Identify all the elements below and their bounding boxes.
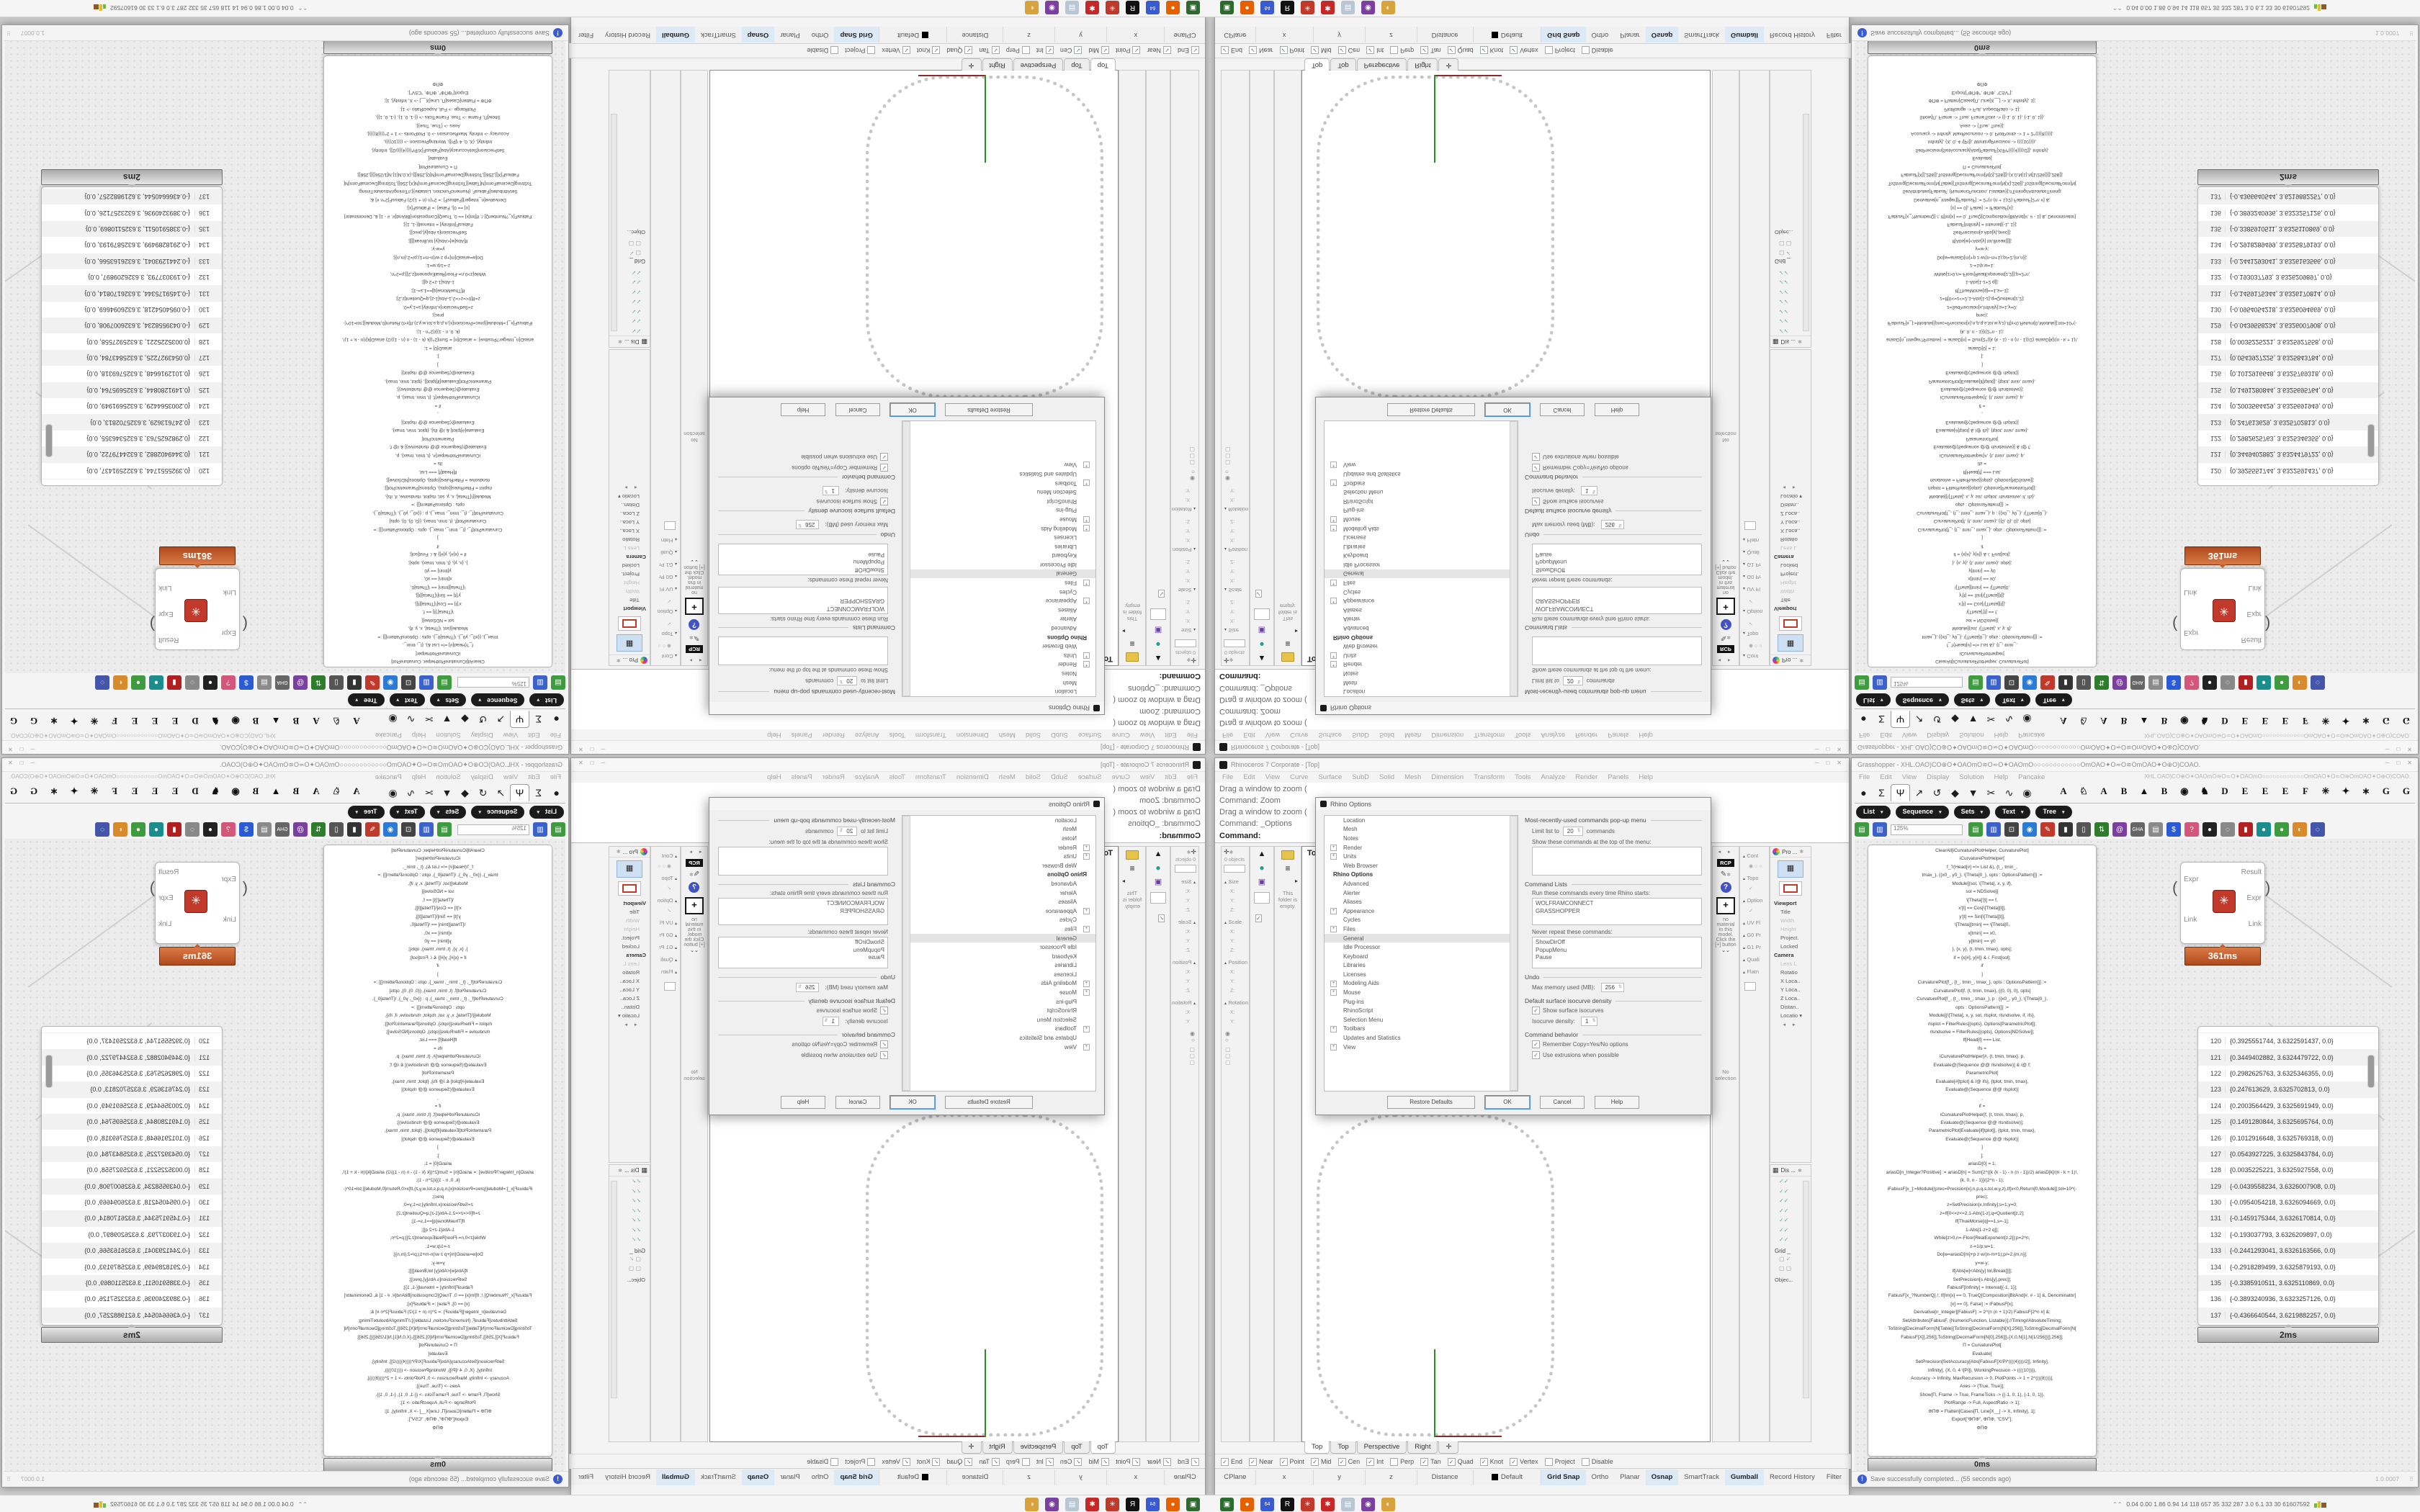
close-icon[interactable]: ✕: [578, 746, 583, 752]
property-row-label[interactable]: Z Loca..: [1770, 994, 1811, 1002]
rhino-menu-item[interactable]: Surface: [1318, 773, 1342, 781]
options-tree-item[interactable]: Mesh: [902, 825, 1095, 834]
resize-grip[interactable]: ⠿: [2409, 1476, 2416, 1482]
camera-properties-button[interactable]: ▦: [1778, 634, 1803, 652]
gear-icon[interactable]: ✱: [1798, 1168, 1802, 1174]
status-toggle[interactable]: Gumball: [656, 1470, 695, 1485]
osnap-checkbox[interactable]: ✓Near: [1147, 47, 1171, 55]
osnap-checkbox[interactable]: ✓Knot: [917, 1458, 941, 1466]
plugin-tab-icon[interactable]: B: [249, 715, 263, 726]
panel-checkbox[interactable]: ✓: [1147, 588, 1170, 608]
options-tree-item[interactable]: +Modeling Aids: [902, 979, 1095, 989]
brush-icon[interactable]: ✎✱: [681, 867, 707, 878]
mathematica-link-component[interactable]: Expr Link Result Expr Link ✳: [2180, 862, 2265, 944]
rhino-menu-item[interactable]: Help: [1639, 773, 1653, 781]
plugin-tab-icon[interactable]: ∗: [2359, 715, 2372, 726]
osnap-checkbox[interactable]: ✓Mid: [1088, 1458, 1109, 1466]
category-tab-icon[interactable]: ↗: [1910, 711, 1928, 727]
photo-panel-icon[interactable]: ▣: [1147, 626, 1170, 639]
grasshopper-menu-item[interactable]: View: [1902, 773, 1917, 781]
notepad-icon[interactable]: ▤: [1065, 1498, 1079, 1511]
category-tab-icon[interactable]: ∿: [402, 785, 420, 801]
osnap-checkbox[interactable]: ✓End: [1178, 47, 1199, 55]
grasshopper-menu-item[interactable]: Display: [471, 773, 493, 781]
property-row-label[interactable]: Viewport: [609, 899, 650, 907]
options-tree-item[interactable]: +Appearance: [902, 596, 1095, 606]
grasshopper-menu-item[interactable]: Edit: [528, 773, 539, 781]
options-tree-item[interactable]: Keyboard: [902, 952, 1095, 961]
options-tree-item[interactable]: +View: [902, 461, 1095, 470]
panel-checkbox[interactable]: ✓: [1250, 588, 1273, 608]
osnap-checkbox[interactable]: ✓Knot: [1480, 47, 1504, 55]
rhino-menu-item[interactable]: Curve: [1112, 732, 1130, 739]
open-file-icon[interactable]: ▤: [1968, 675, 1983, 690]
osnap-checkbox[interactable]: Project: [845, 47, 875, 55]
code-panel[interactable]: ClearAll[iCurvaturePlotHelper, Curvature…: [1868, 55, 2097, 667]
category-tab-icon[interactable]: ▼: [438, 785, 456, 801]
options-tree-item[interactable]: +Render: [902, 843, 1095, 852]
list-scroll-thumb[interactable]: [45, 424, 53, 457]
plugin-tab-icon[interactable]: ✦: [2339, 715, 2352, 726]
save-file-icon[interactable]: ▥: [533, 675, 547, 690]
rhino-menu-item[interactable]: Tools: [1515, 732, 1531, 739]
category-tab-icon[interactable]: Ψ: [1891, 784, 1910, 801]
expand-right-icon[interactable]: ▸: [1275, 873, 1301, 884]
plugin-tab-icon[interactable]: E: [2258, 715, 2272, 726]
options-tree-item[interactable]: Notes: [1325, 669, 1518, 678]
component-output-expr[interactable]: Expr: [158, 610, 174, 618]
grasshopper-menu-item[interactable]: File: [550, 732, 561, 739]
rhino-menu-item[interactable]: Solid: [1026, 773, 1041, 781]
osnap-checkbox[interactable]: ✓Cen: [1060, 47, 1083, 55]
status-layer[interactable]: Default: [879, 27, 946, 43]
osnap-checkbox[interactable]: Project: [1545, 47, 1575, 55]
tray-mini-graph[interactable]: [2314, 5, 2326, 12]
ok-button[interactable]: OK: [890, 403, 935, 416]
property-row-label[interactable]: Title: [1770, 596, 1811, 605]
options-tree-item[interactable]: +Files: [902, 578, 1095, 588]
options-tree-item[interactable]: +Appearance: [902, 906, 1095, 916]
options-tree-item[interactable]: +Appearance: [1325, 596, 1518, 606]
property-row-label[interactable]: Title: [609, 907, 650, 916]
osnap-checkbox[interactable]: ✓Quad: [946, 1458, 972, 1466]
orange-ball-icon[interactable]: ◐: [2293, 822, 2307, 837]
plugin-tab-icon[interactable]: G: [7, 715, 21, 726]
never-repeat-item[interactable]: PopupMenu: [1536, 947, 1698, 955]
osnap-checkbox[interactable]: ✓Int: [1366, 1458, 1384, 1466]
options-tree-item[interactable]: RhinoScript: [902, 1006, 1095, 1015]
status-layer[interactable]: Default: [1474, 1470, 1541, 1485]
osnap-checkbox[interactable]: ✓Tan: [979, 47, 1000, 55]
options-tree-item[interactable]: Mesh: [1325, 825, 1518, 834]
rcp-tab[interactable]: RCP: [1717, 859, 1734, 867]
status-toggle[interactable]: Grid Snap: [835, 27, 879, 43]
behavior-checkbox[interactable]: ✓Remember Copy=Yes/No options: [718, 464, 888, 472]
red-cylinder-icon[interactable]: ▮: [2238, 822, 2253, 837]
options-tree-item[interactable]: Advanced: [1325, 879, 1518, 888]
property-row-label[interactable]: X Loca..: [1770, 527, 1811, 536]
category-tab-icon[interactable]: Σ: [1873, 711, 1891, 727]
property-row-label[interactable]: Viewport: [1770, 899, 1811, 907]
zoom-extents-icon[interactable]: ⊡: [401, 675, 416, 690]
options-tree-item[interactable]: +Mouse: [1325, 988, 1518, 997]
category-tab-icon[interactable]: ▼: [438, 711, 456, 727]
grasshopper-menu-item[interactable]: File: [1859, 732, 1870, 739]
osnap-checkbox[interactable]: Perp: [1006, 1458, 1030, 1466]
rhino-menu-item[interactable]: Help: [767, 773, 781, 781]
folder-icon[interactable]: [1281, 850, 1294, 860]
preview-eye-icon[interactable]: ◉: [383, 675, 398, 690]
plugin-tab-icon[interactable]: ✦: [68, 786, 81, 797]
zoom-level-input[interactable]: 125%: [1891, 678, 1963, 688]
save-file-icon[interactable]: ▥: [419, 822, 434, 837]
plugin-tab-icon[interactable]: E: [169, 786, 182, 797]
rhino-menu-item[interactable]: Curve: [1290, 773, 1308, 781]
rhino-menu-item[interactable]: Mesh: [999, 732, 1016, 739]
options-tree-item[interactable]: Location: [1325, 816, 1518, 825]
rhino-menu-item[interactable]: Surface: [1078, 773, 1102, 781]
component-group-dropdown[interactable]: Sequence▾: [471, 806, 524, 819]
plugin-tab-icon[interactable]: D: [189, 715, 202, 726]
component-output-expr[interactable]: Expr: [158, 894, 174, 902]
options-tree-item[interactable]: Updates and Statistics: [1325, 1033, 1518, 1043]
decal-button[interactable]: [618, 881, 641, 896]
property-row-label[interactable]: Locatio ▾: [1770, 1011, 1811, 1020]
mathematica-icon[interactable]: ✳: [1301, 1, 1314, 15]
plugin-tab-icon[interactable]: G: [2399, 715, 2413, 726]
osnap-checkbox[interactable]: ✓End: [1178, 1458, 1199, 1466]
property-row-label[interactable]: Y Loca..: [1770, 985, 1811, 994]
notes-icon[interactable]: ▤: [2148, 822, 2163, 837]
component-group-dropdown[interactable]: Sets▾: [430, 806, 467, 819]
property-row-label[interactable]: Y Loca..: [1770, 518, 1811, 527]
options-tree-item[interactable]: Libraries: [902, 542, 1095, 552]
options-tree-item[interactable]: Updates and Statistics: [902, 469, 1095, 479]
property-row-label[interactable]: Locked: [609, 942, 650, 950]
save-file-icon[interactable]: ▥: [1873, 675, 1887, 690]
component-group-dropdown[interactable]: Tree▾: [349, 693, 385, 706]
hwinfo64-icon[interactable]: 64: [1260, 1, 1274, 15]
plugin-tab-icon[interactable]: D: [2218, 715, 2231, 726]
help-icon[interactable]: ?: [1721, 619, 1731, 630]
options-tree-item[interactable]: +View: [902, 1043, 1095, 1052]
mathematica-icon[interactable]: ✳: [1106, 1, 1119, 15]
minimize-icon[interactable]: ─: [1815, 746, 1819, 752]
never-repeat-item[interactable]: ShowDirOff: [722, 566, 884, 574]
zoom-level-input[interactable]: 125%: [457, 824, 529, 835]
restore-defaults-button[interactable]: Restore Defaults: [1387, 403, 1475, 416]
plugin-tab-icon[interactable]: B: [2117, 715, 2130, 726]
plugin-tab-icon[interactable]: B: [2157, 786, 2171, 797]
list-scroll-thumb[interactable]: [45, 1055, 53, 1088]
osnap-checkbox[interactable]: ✓Mid: [1311, 1458, 1332, 1466]
green-ball-icon[interactable]: ●: [131, 822, 145, 837]
mathematica-link-component[interactable]: Expr Link Result Expr Link ✳: [155, 568, 240, 650]
status-toggle[interactable]: Filter: [573, 1470, 599, 1485]
open-file-icon[interactable]: ▤: [551, 822, 565, 837]
osnap-checkbox[interactable]: ✓End: [1221, 1458, 1242, 1466]
boxedit-input[interactable]: [1175, 639, 1196, 647]
status-toggle[interactable]: SmartTrack: [695, 27, 742, 43]
options-tree-item[interactable]: Licenses: [1325, 533, 1518, 542]
panel-pager[interactable]: ◂ ▸: [1713, 847, 1739, 855]
category-tab-icon[interactable]: ◉: [384, 711, 402, 727]
gizmo-icon[interactable]: ✛✱: [1222, 656, 1249, 665]
gha-installer-icon[interactable]: GHA: [275, 822, 290, 837]
plugin-tab-icon[interactable]: E: [169, 715, 182, 726]
grasshopper-menu-item[interactable]: File: [1859, 773, 1870, 781]
viewport-tab[interactable]: Top: [1064, 58, 1089, 71]
axes-tree-icon[interactable]: ⇅: [2094, 675, 2109, 690]
mru-command-listbox[interactable]: [718, 636, 888, 665]
rhino-menu-item[interactable]: Tools: [1515, 773, 1531, 781]
expand-right-icon[interactable]: ▸: [1275, 628, 1301, 639]
options-tree-item[interactable]: Idle Processor: [1325, 942, 1518, 952]
close-icon[interactable]: ✕: [578, 760, 583, 766]
add-material-button[interactable]: +: [1716, 897, 1735, 914]
options-tree-item[interactable]: +Units: [902, 651, 1095, 660]
grasshopper-menu-item[interactable]: Solution: [436, 773, 460, 781]
osnap-checkbox[interactable]: ✓Near: [1249, 47, 1273, 55]
options-tree-item[interactable]: Rhino Options: [902, 633, 1095, 642]
brush-icon[interactable]: ✎✱: [1713, 867, 1739, 878]
category-tab-icon[interactable]: ◉: [384, 785, 402, 801]
speaker-icon[interactable]: ▯: [329, 675, 344, 690]
grasshopper-menu-item[interactable]: Solution: [1959, 732, 1984, 739]
osnap-checkbox[interactable]: Perp: [1006, 47, 1030, 55]
property-row-label[interactable]: Lens L: [609, 544, 650, 553]
viewport-tab[interactable]: Perspective: [1357, 1441, 1407, 1454]
lasso-select-icon[interactable]: ◌: [95, 822, 109, 837]
decal-button[interactable]: [618, 616, 641, 631]
osnap-checkbox[interactable]: ✓Quad: [946, 47, 972, 55]
orange-ball-icon[interactable]: ◐: [113, 675, 127, 690]
osnap-checkbox[interactable]: Project: [845, 1458, 875, 1466]
property-row-label[interactable]: Y Loca..: [609, 518, 650, 527]
panel-pager[interactable]: ◂ ▸: [1713, 657, 1739, 665]
list-scroll-thumb[interactable]: [2367, 1055, 2375, 1088]
options-tree-item[interactable]: +Units: [902, 852, 1095, 861]
never-repeat-item[interactable]: PopupMenu: [722, 947, 884, 955]
options-tree-item[interactable]: Idle Processor: [902, 560, 1095, 570]
zoom-level-input[interactable]: 125%: [1891, 824, 1963, 835]
property-row-label[interactable]: Rotatio: [609, 968, 650, 976]
maximize-icon[interactable]: □: [2396, 760, 2400, 766]
grasshopper-canvas[interactable]: ClearAll[iCurvaturePlotHelper, Curvature…: [1855, 41, 2415, 673]
status-toggle[interactable]: SmartTrack: [1678, 1470, 1725, 1485]
axes-tree-icon[interactable]: ⇅: [311, 675, 326, 690]
rhino-menu-item[interactable]: Solid: [1379, 732, 1394, 739]
plugin-tab-icon[interactable]: ♘: [2076, 715, 2090, 726]
options-tree-item[interactable]: Location: [902, 816, 1095, 825]
boxedit-radios[interactable]: ◉○: [1171, 469, 1198, 487]
category-tab-icon[interactable]: ●: [1855, 711, 1873, 727]
bake-light-icon[interactable]: ◌: [2220, 822, 2235, 837]
chevrons-icon[interactable]: ⌄⌄: [681, 948, 707, 953]
mru-limit-input[interactable]: 20: [1563, 827, 1583, 836]
osnap-checkbox[interactable]: ✓Vertex: [1510, 1458, 1538, 1466]
plugin-tab-icon[interactable]: E: [2258, 786, 2272, 797]
plugin-tab-icon[interactable]: G: [27, 715, 41, 726]
undo-mem-input[interactable]: 256: [796, 983, 819, 992]
options-tree-item[interactable]: Alerter: [902, 888, 1095, 898]
teal-ball-icon[interactable]: ●: [149, 822, 163, 837]
options-tree-item[interactable]: Rhino Options: [902, 870, 1095, 880]
tray-mini-graph[interactable]: [94, 5, 106, 12]
grasshopper-menu-item[interactable]: Pancake: [375, 732, 402, 739]
zoom-level-input[interactable]: 125%: [457, 678, 529, 688]
component-group-dropdown[interactable]: Text▾: [390, 806, 425, 819]
options-tree-item[interactable]: +Units: [1325, 852, 1518, 861]
grasshopper-menu-item[interactable]: View: [1902, 732, 1917, 739]
behavior-checkbox[interactable]: ✓Use extrusions when possible: [718, 453, 888, 461]
grasshopper-menu-item[interactable]: Edit: [528, 732, 539, 739]
options-dialog-titlebar[interactable]: Rhino Options: [1316, 702, 1711, 714]
expand-right-icon[interactable]: ▸: [1119, 873, 1145, 884]
photo-panel-icon[interactable]: ▣: [1250, 873, 1273, 886]
ok-button[interactable]: OK: [890, 1096, 935, 1109]
firefox-icon[interactable]: ●: [1166, 1, 1180, 15]
mathematica-link-component[interactable]: Expr Link Result Expr Link ✳: [2180, 568, 2265, 650]
help-button[interactable]: Help: [1595, 1096, 1639, 1109]
osnap-checkbox[interactable]: ✓Quad: [1448, 1458, 1474, 1466]
property-row-label[interactable]: Width: [609, 588, 650, 596]
osnap-checkbox[interactable]: ✓Quad: [1448, 47, 1474, 55]
lasso-select-icon[interactable]: ◌: [2311, 675, 2325, 690]
axes-tree-icon[interactable]: ⇅: [311, 822, 326, 837]
firefox-icon[interactable]: ●: [1240, 1, 1254, 15]
rhino-menu-item[interactable]: Mesh: [1404, 773, 1421, 781]
status-toggle[interactable]: Planar: [774, 27, 805, 43]
plugin-tab-icon[interactable]: E: [2238, 715, 2251, 726]
boxedit-radios[interactable]: ◉○: [1171, 1025, 1198, 1043]
category-tab-icon[interactable]: Σ: [529, 711, 547, 727]
category-tab-icon[interactable]: ◆: [456, 785, 474, 801]
options-tree-item[interactable]: +Appearance: [1325, 906, 1518, 916]
save-file-icon[interactable]: ▥: [419, 675, 434, 690]
tray-mini-graph[interactable]: [2314, 1501, 2326, 1508]
teal-blob-icon[interactable]: ●: [1250, 858, 1273, 873]
options-tree-item[interactable]: +Mouse: [902, 988, 1095, 997]
never-repeat-item[interactable]: Pause: [1536, 954, 1698, 962]
options-tree-item[interactable]: Selection Menu: [1325, 1015, 1518, 1025]
property-row-label[interactable]: Distan..: [1770, 1002, 1811, 1011]
rhino-menu-item[interactable]: Dimension: [1431, 732, 1464, 739]
osnap-checkbox[interactable]: ✓Near: [1147, 1458, 1171, 1466]
rhino-menu-item[interactable]: View: [1265, 732, 1280, 739]
options-tree-item[interactable]: Web Browser: [1325, 642, 1518, 651]
component-input-link[interactable]: Link: [2184, 588, 2197, 596]
minimize-icon[interactable]: ─: [601, 746, 606, 752]
close-icon[interactable]: ✕: [2407, 746, 2412, 752]
notepad-icon[interactable]: ▤: [1065, 1, 1079, 15]
rhino-menu-item[interactable]: File: [1222, 732, 1233, 739]
component-group-dropdown[interactable]: Sets▾: [1954, 806, 1991, 819]
status-toggle[interactable]: Osnap: [742, 1470, 775, 1485]
rhino-menu-item[interactable]: Dimension: [956, 773, 989, 781]
plugin-tab-icon[interactable]: ✳: [88, 786, 102, 797]
maximize-icon[interactable]: □: [1826, 746, 1829, 752]
run-command-item[interactable]: GRASSHOPPER: [1536, 908, 1698, 916]
status-cplane[interactable]: CPlane: [1215, 27, 1256, 43]
options-tree-item[interactable]: Rhino Options: [1325, 870, 1518, 880]
maximize-icon[interactable]: □: [20, 746, 24, 752]
analysis-box[interactable]: [664, 982, 676, 991]
resize-grip[interactable]: ⠿: [2409, 30, 2416, 37]
property-row-label[interactable]: Locked: [609, 562, 650, 570]
plugin-tab-icon[interactable]: E: [128, 715, 142, 726]
rhino-menu-item[interactable]: Mesh: [1404, 732, 1421, 739]
hwinfo64-icon[interactable]: 64: [1146, 1, 1160, 15]
osnap-checkbox[interactable]: Perp: [1390, 47, 1414, 55]
rhino-menu-item[interactable]: Analyze: [855, 732, 879, 739]
grasshopper-menu-item[interactable]: Pancake: [2018, 732, 2045, 739]
rhino-menu-item[interactable]: Dimension: [956, 732, 989, 739]
options-tree-item[interactable]: Aliases: [902, 606, 1095, 615]
property-row-label[interactable]: Title: [609, 596, 650, 605]
camera-properties-button[interactable]: ▦: [617, 634, 642, 652]
options-tree-item[interactable]: +Modeling Aids: [902, 524, 1095, 534]
category-tab-icon[interactable]: ↗: [492, 785, 510, 801]
help-button[interactable]: Help: [781, 403, 825, 416]
options-tree-item[interactable]: Selection Menu: [1325, 487, 1518, 497]
palette-app-icon[interactable]: ◐: [1025, 1, 1039, 15]
properties-pager[interactable]: ◂ ▸: [609, 1020, 650, 1027]
options-tree-item[interactable]: Plug-ins: [1325, 997, 1518, 1007]
property-row-label[interactable]: Height: [1770, 924, 1811, 933]
plugin-tab-icon[interactable]: ◉: [2177, 786, 2191, 797]
help-box-icon[interactable]: ?: [221, 822, 236, 837]
maximize-icon[interactable]: □: [2396, 746, 2400, 752]
category-tab-icon[interactable]: ∿: [402, 711, 420, 727]
boxedit-input[interactable]: [1224, 865, 1245, 873]
property-row-label[interactable]: Rotatio: [1770, 968, 1811, 976]
component-output-link[interactable]: Link: [158, 920, 171, 928]
options-tree-item[interactable]: Keyboard: [1325, 552, 1518, 561]
rhino-menu-item[interactable]: Panels: [792, 732, 812, 739]
boxedit-checkboxes[interactable]: ▢▢▢: [1222, 446, 1249, 469]
notepad-icon[interactable]: ▤: [1341, 1, 1355, 15]
component-input-expr[interactable]: Expr: [2184, 629, 2199, 636]
options-tree-item[interactable]: Aliases: [902, 897, 1095, 906]
camera-icon[interactable]: ▮: [347, 675, 362, 690]
mru-limit-input[interactable]: 20: [1563, 676, 1583, 685]
property-row-label[interactable]: Distan..: [609, 501, 650, 510]
property-row-label[interactable]: Project.: [1770, 570, 1811, 579]
component-group-dropdown[interactable]: Text▾: [390, 693, 425, 706]
options-tree-item[interactable]: Cycles: [1325, 588, 1518, 597]
preview-eye-icon[interactable]: ◉: [2022, 675, 2037, 690]
category-tab-icon[interactable]: ◆: [1946, 711, 1964, 727]
boxedit-input[interactable]: [1175, 865, 1196, 873]
maximize-icon[interactable]: □: [1826, 760, 1829, 766]
cluster-at-icon[interactable]: @: [293, 675, 308, 690]
green-ball-icon[interactable]: ●: [2275, 675, 2289, 690]
owl-app-icon[interactable]: ◉: [1361, 1498, 1375, 1511]
property-row-label[interactable]: Project.: [609, 933, 650, 942]
grasshopper-menu-item[interactable]: View: [503, 773, 518, 781]
run-command-item[interactable]: WOLFRAMCONNECT: [722, 605, 884, 613]
camera-properties-button[interactable]: ▦: [1778, 860, 1803, 878]
notes-icon[interactable]: ▤: [257, 675, 272, 690]
component-input-link[interactable]: Link: [2184, 916, 2197, 924]
rhino-menu-item[interactable]: Solid: [1026, 732, 1041, 739]
palette-app-icon[interactable]: ◐: [1381, 1, 1395, 15]
rcp-tab[interactable]: RCP: [686, 645, 703, 653]
rhino-menu-item[interactable]: Dimension: [1431, 773, 1464, 781]
run-command-item[interactable]: GRASSHOPPER: [722, 597, 884, 605]
component-group-dropdown[interactable]: Tree▾: [2035, 806, 2071, 819]
